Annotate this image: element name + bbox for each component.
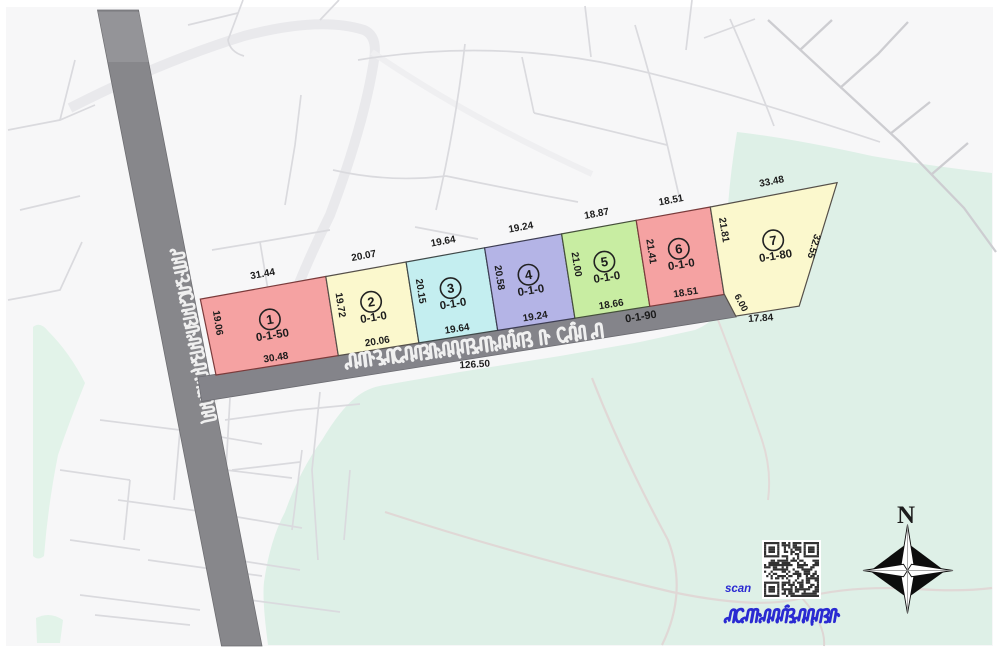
svg-text:17.84: 17.84 xyxy=(748,312,774,325)
svg-text:126.50: 126.50 xyxy=(459,359,491,372)
svg-text:N: N xyxy=(897,502,915,529)
svg-text:scan: scan xyxy=(725,583,751,595)
